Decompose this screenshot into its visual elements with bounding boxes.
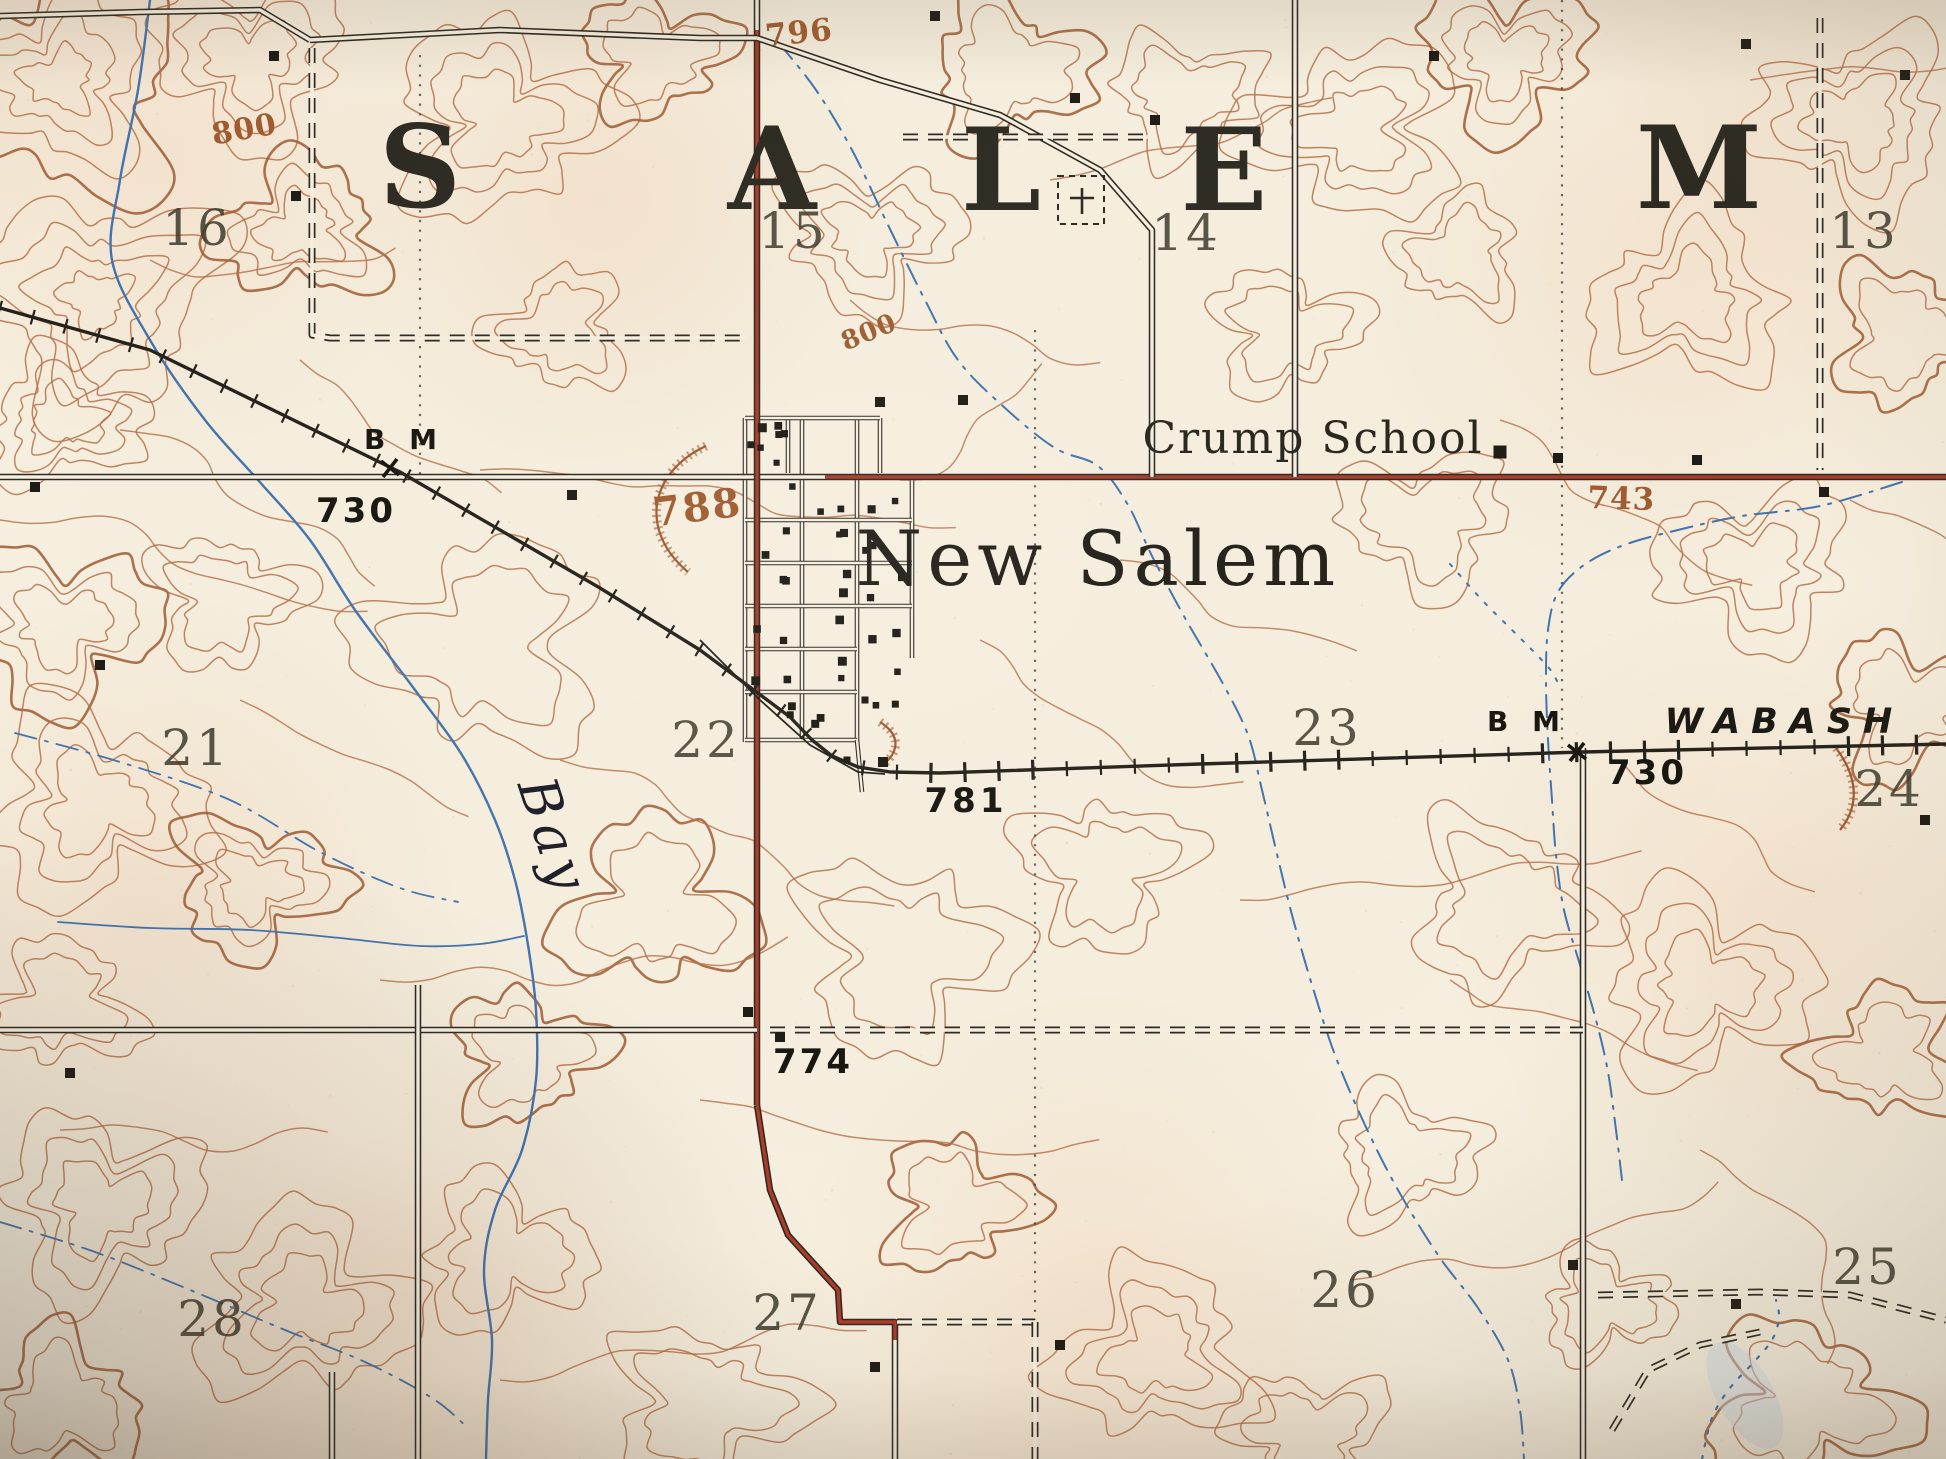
photo-vignette xyxy=(0,0,1946,1459)
topo-map-canvas: SALEMNew SalemCrump SchoolWABASHBayB M73… xyxy=(0,0,1946,1459)
topo-map-photo: SALEMNew SalemCrump SchoolWABASHBayB M73… xyxy=(0,0,1946,1459)
